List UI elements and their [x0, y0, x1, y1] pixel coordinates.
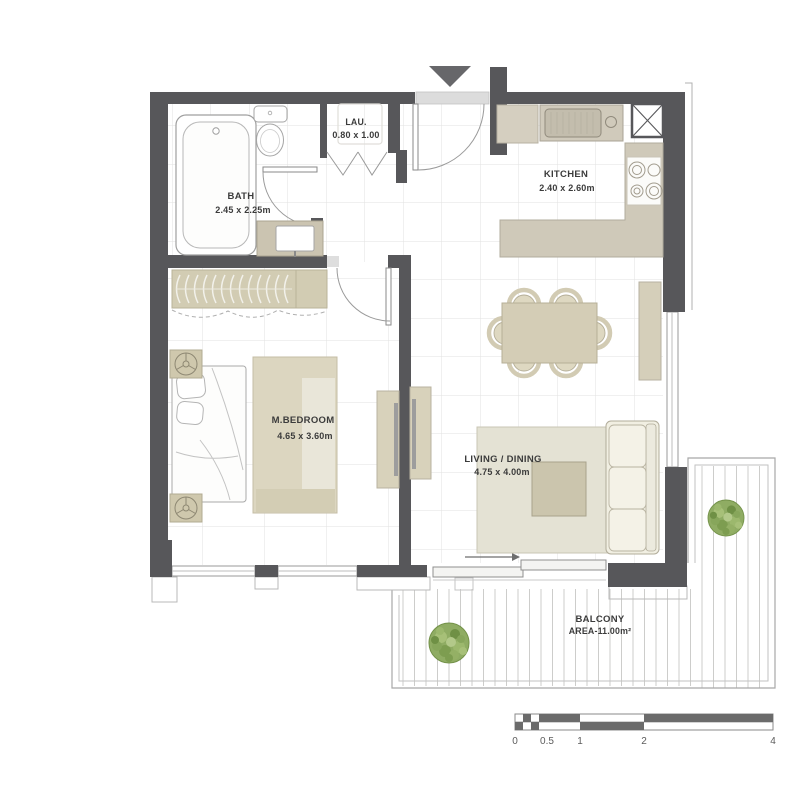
scale-label-05: 0.5	[540, 736, 554, 747]
kitchen-dimensions: 2.40 x 2.60m	[539, 183, 594, 193]
bedroom-door-threshold	[327, 256, 339, 267]
bedroom-dimensions: 4.65 x 3.60m	[277, 431, 332, 441]
entry-threshold	[416, 92, 489, 104]
kitchen-label: KITCHEN	[544, 169, 588, 180]
sofa-backrest	[646, 424, 656, 551]
floor-plan-svg: BATH 2.45 x 2.25m LAU. 0.80 x 1.00 KITCH…	[0, 0, 800, 800]
sofa-cushion	[609, 467, 646, 509]
nightstand-lamp-icon	[170, 494, 202, 522]
coffee-table	[532, 462, 586, 516]
scale-bar-labels: 0 0.5 1 2 4	[512, 736, 776, 747]
scale-label-0: 0	[512, 736, 518, 747]
entry-door-leaf	[413, 104, 418, 170]
wall-bath-bedroom-divider	[168, 255, 327, 268]
window-sill	[357, 577, 430, 590]
bath-door-leaf	[263, 167, 317, 172]
wall-bedroom-living-divider	[399, 262, 411, 577]
sliding-door-panel	[521, 560, 606, 570]
toilet-tank	[254, 106, 287, 122]
living-dining-label: LIVING / DINING	[464, 454, 541, 465]
wall-bottom-left-pillar	[150, 540, 172, 577]
wall-top-left	[150, 92, 415, 104]
kitchen-cabinet	[497, 105, 538, 143]
sofa-cushion	[609, 425, 646, 467]
sofa-cushion	[609, 509, 646, 551]
entrance-marker-icon	[429, 66, 471, 87]
bedroom-bench	[256, 489, 335, 512]
balcony-decking-arm	[695, 466, 768, 688]
wall-right-upper	[663, 92, 685, 312]
dining-set	[489, 290, 610, 376]
bath-label: BATH	[228, 191, 255, 202]
scale-label-1: 1	[577, 736, 583, 747]
bath-dimensions: 2.45 x 2.25m	[215, 205, 270, 215]
balcony-label: BALCONY	[575, 614, 624, 625]
sideboard	[639, 282, 661, 380]
exterior-edge-line	[685, 83, 692, 310]
bathtub-drain	[213, 128, 219, 134]
living-dining-dimensions: 4.75 x 4.00m	[474, 467, 529, 477]
wall-top-right	[490, 92, 685, 104]
scale-label-4: 4	[770, 736, 776, 747]
window-sill	[255, 577, 278, 589]
pillow	[176, 401, 204, 425]
floor-plan-page: BATH 2.45 x 2.25m LAU. 0.80 x 1.00 KITCH…	[0, 0, 800, 800]
scale-label-2: 2	[641, 736, 647, 747]
plant-icon	[429, 623, 469, 663]
sliding-door-panel	[433, 567, 523, 577]
wall-laundry-pillar	[396, 150, 407, 183]
wall-bottom-pier	[255, 565, 278, 577]
dining-table	[502, 303, 597, 363]
wall-left	[150, 92, 168, 577]
balcony-area: AREA-11.00m²	[569, 626, 632, 636]
laundry-dimensions: 0.80 x 1.00	[332, 130, 379, 140]
bathtub-inner	[183, 122, 249, 248]
nightstand-lamp-icon	[170, 350, 202, 378]
wall-bottom-center	[357, 565, 427, 577]
wall-laundry-right	[388, 92, 400, 153]
wall-laundry-left	[320, 103, 327, 158]
wall-right-lower	[665, 467, 687, 567]
tv-icon	[394, 403, 398, 476]
bedroom-label: M.BEDROOM	[272, 415, 335, 426]
bedroom-door-leaf	[386, 268, 391, 325]
window-sill	[152, 577, 177, 602]
vanity-sink-icon	[276, 226, 314, 251]
laundry-label: LAU.	[345, 117, 366, 127]
scale-bar: 0 0.5 1 2 4	[512, 714, 776, 747]
plant-icon	[708, 500, 744, 536]
tv-icon	[412, 399, 416, 469]
